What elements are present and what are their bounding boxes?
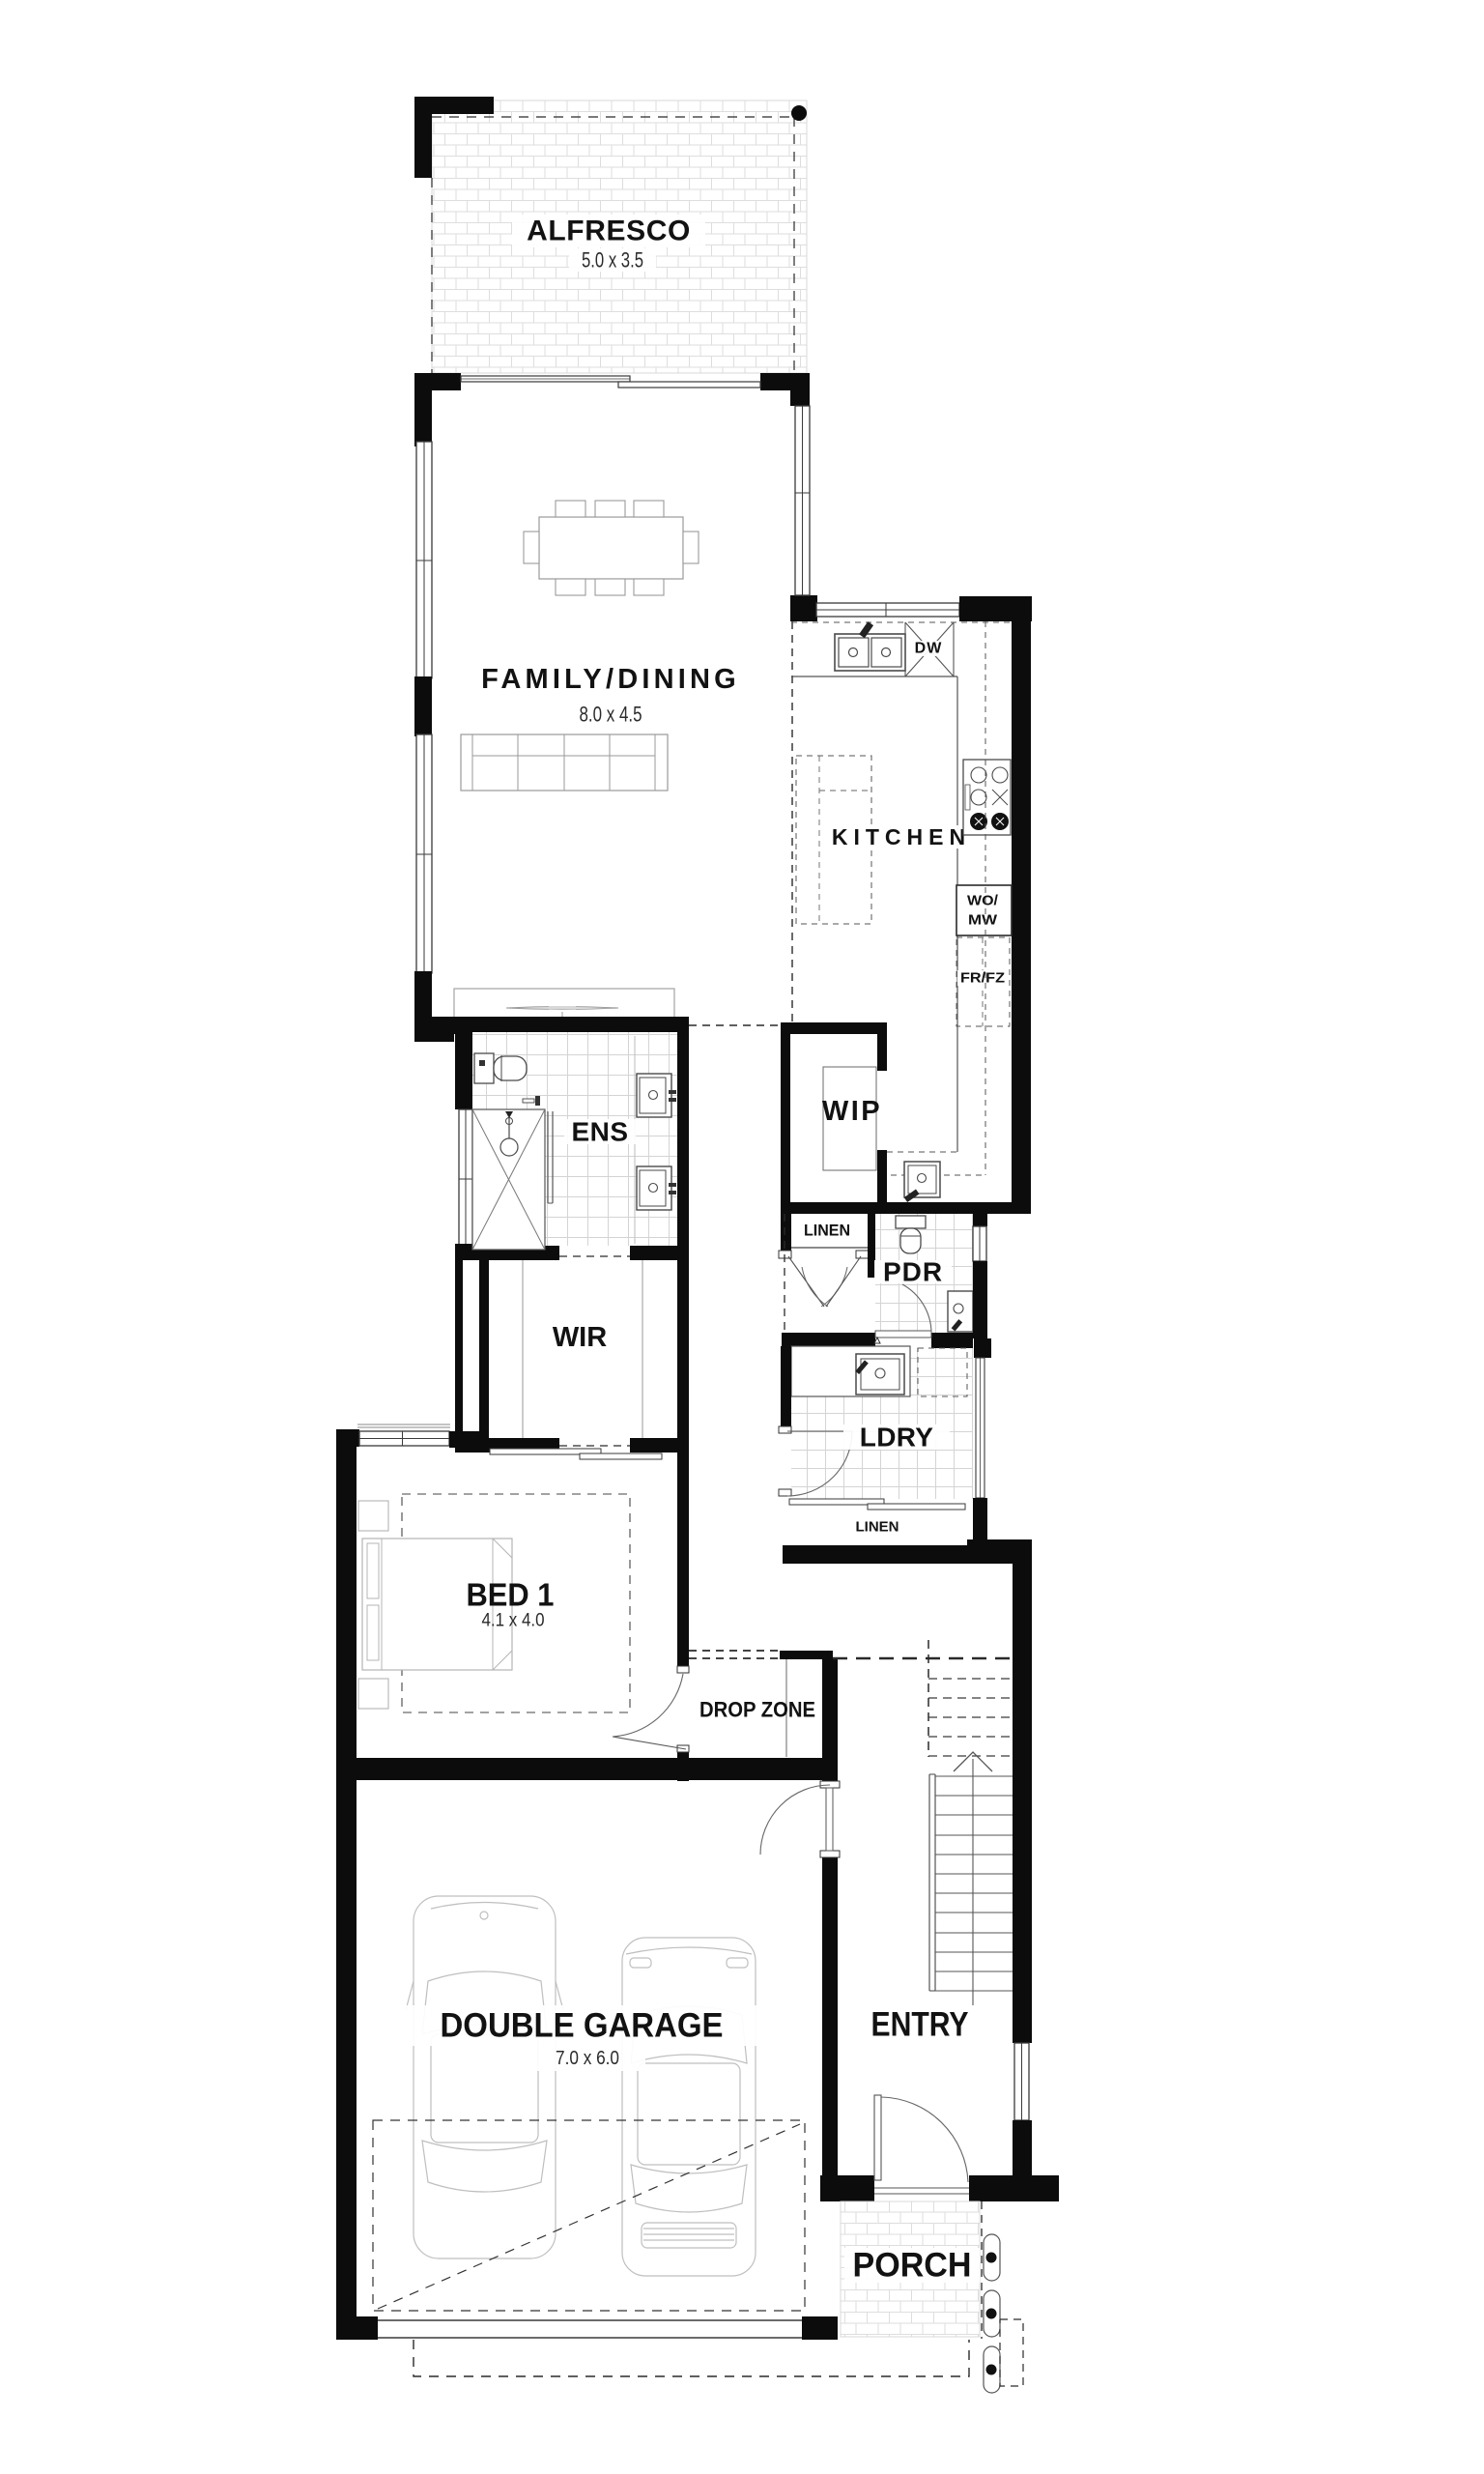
svg-text:BED 1: BED 1 [467, 1577, 555, 1613]
svg-text:PDR: PDR [883, 1257, 943, 1287]
svg-text:PORCH: PORCH [853, 2247, 972, 2285]
svg-text:WO/: WO/ [967, 893, 999, 909]
svg-text:LINEN: LINEN [856, 1519, 899, 1536]
svg-text:7.0 x 6.0: 7.0 x 6.0 [556, 2048, 619, 2069]
svg-text:DW: DW [915, 641, 943, 657]
svg-text:MW: MW [968, 912, 998, 929]
svg-text:WIR: WIR [553, 1322, 607, 1353]
svg-text:ENS: ENS [571, 1117, 628, 1147]
svg-text:DROP ZONE: DROP ZONE [699, 1698, 815, 1722]
svg-text:8.0 x 4.5: 8.0 x 4.5 [580, 703, 642, 727]
svg-text:4.1 x 4.0: 4.1 x 4.0 [482, 1611, 545, 1631]
svg-text:LINEN: LINEN [804, 1222, 850, 1240]
svg-text:WIP: WIP [822, 1096, 882, 1127]
svg-text:KITCHEN: KITCHEN [832, 824, 971, 849]
svg-text:ALFRESCO: ALFRESCO [527, 216, 691, 247]
svg-text:FR/FZ: FR/FZ [960, 970, 1005, 987]
svg-text:DOUBLE GARAGE: DOUBLE GARAGE [441, 2007, 724, 2045]
svg-text:5.0 x 3.5: 5.0 x 3.5 [582, 248, 643, 273]
svg-text:LDRY: LDRY [860, 1423, 933, 1453]
svg-text:FAMILY/DINING: FAMILY/DINING [481, 664, 740, 695]
svg-text:ENTRY: ENTRY [871, 2006, 969, 2044]
